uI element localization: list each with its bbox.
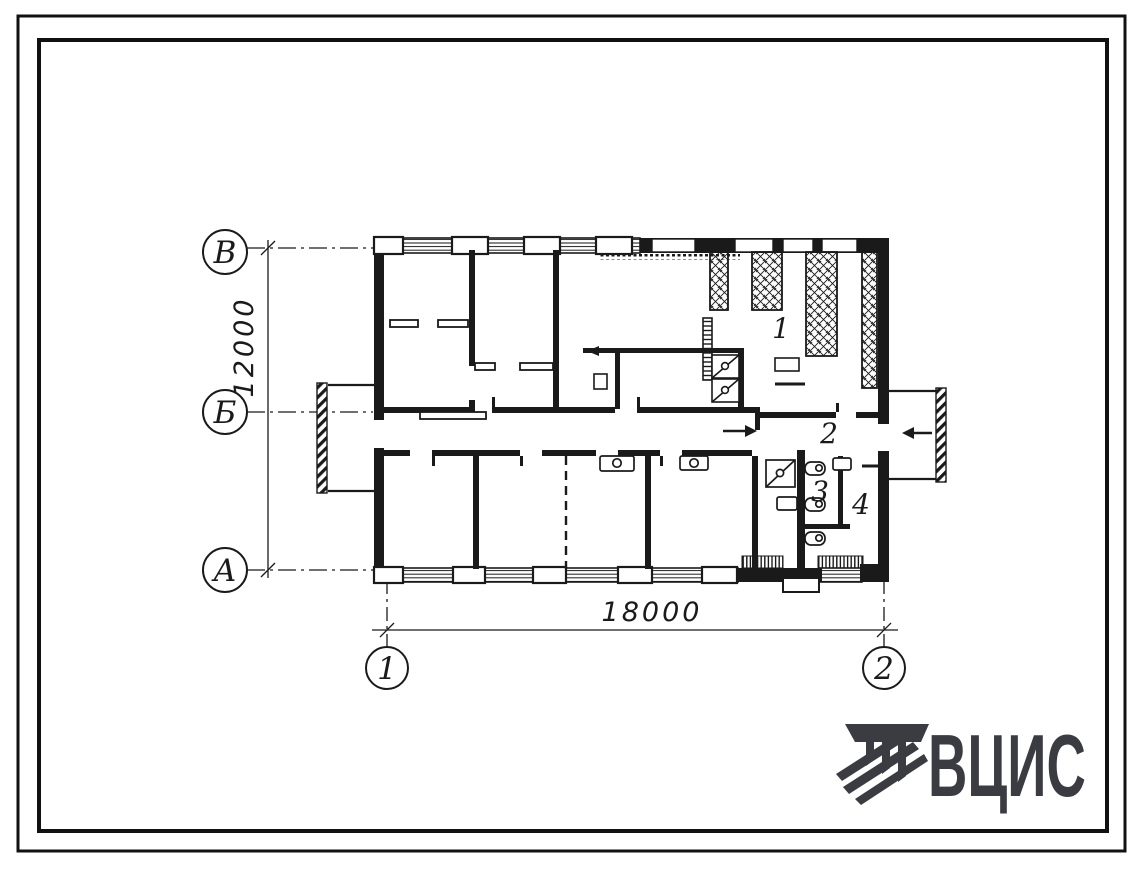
room-label-1: 1 [772,312,790,345]
bottom-wall [374,556,889,592]
flue-hatch [703,318,712,380]
left-porch [317,383,374,493]
vcis-logo-text: ВЦИС [928,717,1086,816]
dim-label-18000: 18000 [602,597,703,628]
porch-hatch [936,388,946,482]
room-label-3: 3 [811,475,829,508]
blueprint-page: { "plan": { "row_axes": [ {"label": "В"}… [0,0,1139,869]
room-label-2: 2 [819,417,838,450]
grate-band [742,556,783,568]
floor-plan: 1 2 3 4 [317,237,946,592]
entrance-arrow-icon [723,425,757,437]
entrance-arrow-icon [902,427,932,439]
wash-basins [600,456,708,471]
entrance-arrow-icon [587,346,613,356]
fixture [775,358,799,371]
axis-label-1: 1 [377,651,397,687]
room-label-4: 4 [851,488,870,521]
right-porch [889,388,946,482]
sink [777,497,797,510]
stoop [783,578,819,592]
porch-hatch [317,383,327,493]
sink [833,458,851,470]
fixture [594,374,607,389]
axis-label-2: 2 [873,651,894,687]
axis-label-b: Б [213,395,237,431]
vcis-logo: ВЦИС [836,717,1086,816]
axis-label-a: А [211,553,236,589]
inner-frame [39,40,1107,831]
axis-label-v: В [213,235,237,271]
blueprint-svg: В Б А 1 2 12000 18000 [0,0,1139,869]
vcis-logo-icon [836,724,929,805]
grate-band [818,556,863,568]
dim-label-12000: 12000 [229,297,260,398]
